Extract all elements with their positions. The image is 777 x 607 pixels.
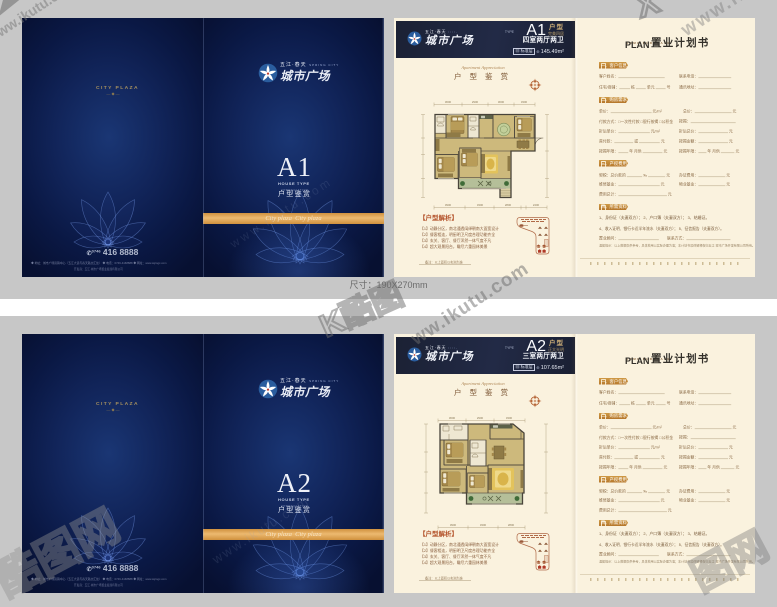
svg-text:3300: 3300 <box>506 416 513 420</box>
svg-text:3300: 3300 <box>477 203 484 207</box>
svg-text:3900: 3900 <box>450 523 457 527</box>
svg-text:3300: 3300 <box>521 100 528 104</box>
svg-text:3900: 3900 <box>445 203 452 207</box>
svg-text:2800: 2800 <box>508 523 515 527</box>
svg-text:2900: 2900 <box>472 100 479 104</box>
svg-text:2800: 2800 <box>505 203 512 207</box>
svg-text:3000: 3000 <box>498 100 505 104</box>
svg-text:3600: 3600 <box>445 100 452 104</box>
svg-text:2400: 2400 <box>533 203 540 207</box>
svg-text:3300: 3300 <box>480 523 487 527</box>
svg-text:2900: 2900 <box>477 416 484 420</box>
svg-text:3600: 3600 <box>449 416 456 420</box>
